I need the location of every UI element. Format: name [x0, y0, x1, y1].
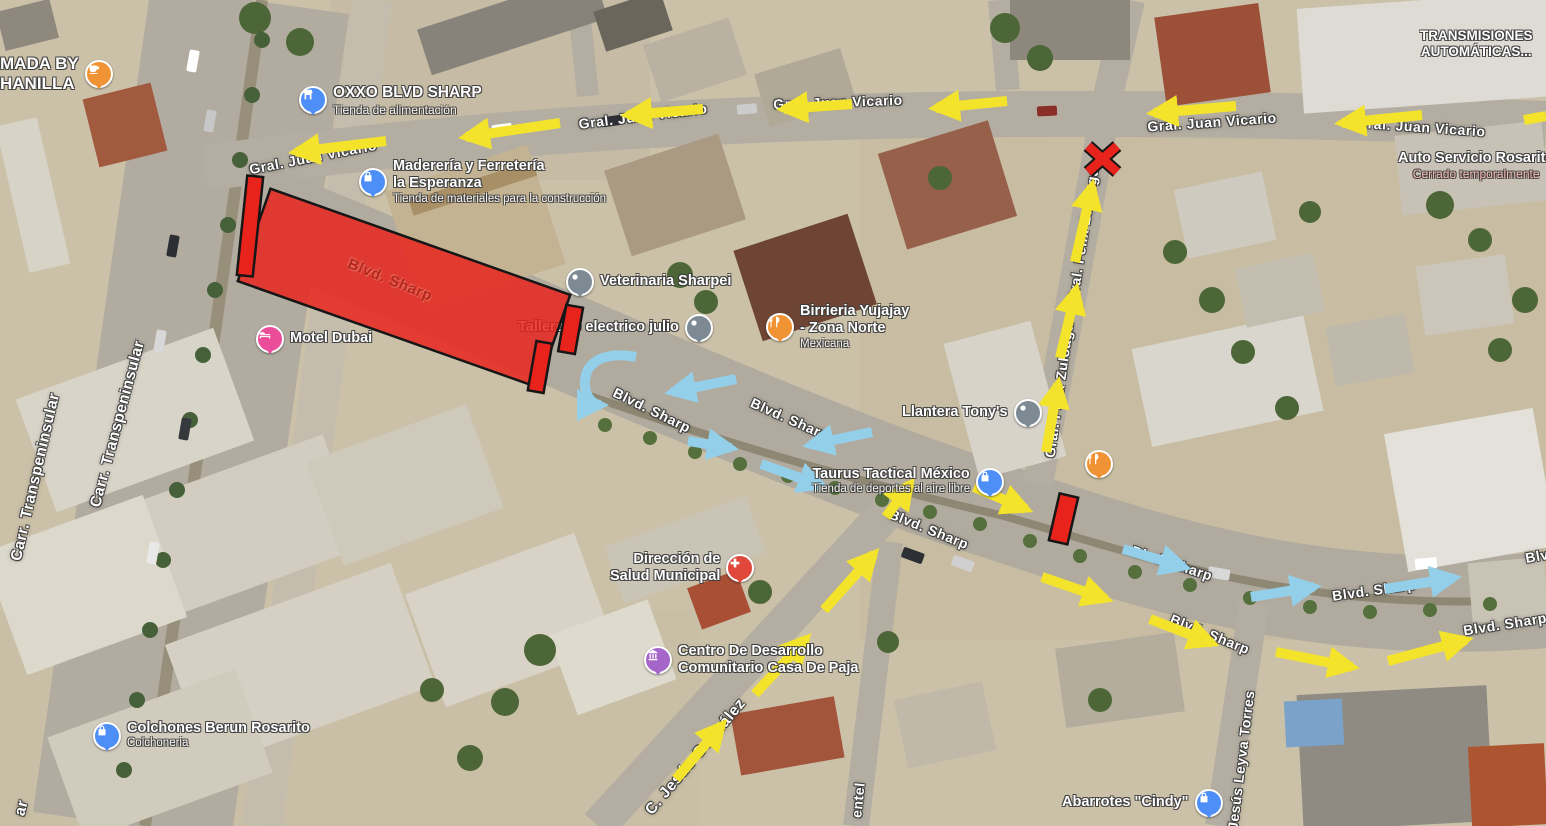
poi-name: Abarrotes "Cindy": [1062, 794, 1189, 811]
poi-subtitle: Tienda de deportes al aire libre: [812, 483, 970, 497]
poi-motel-dubai[interactable]: Motel Dubai: [256, 325, 372, 353]
poi-birrieria[interactable]: Birrieria Yujajay - Zona Norte Mexicana: [766, 303, 909, 352]
poi-transmisiones[interactable]: TRANSMISIONES AUTOMÁTICAS...: [1420, 28, 1533, 60]
poi-name: Llantera Tony's: [902, 404, 1008, 421]
poi-name: AUTOMÁTICAS...: [1420, 44, 1533, 60]
shopping-bag-icon: [1195, 789, 1223, 817]
poi-centro-desarrollo[interactable]: Centro De Desarrollo Comunitario Casa De…: [644, 643, 859, 678]
poi-taurus[interactable]: Taurus Tactical México Tienda de deporte…: [812, 466, 1004, 497]
shopping-bag-icon: [93, 722, 121, 750]
shopping-bag-icon: [359, 168, 387, 196]
poi-food-stand[interactable]: [1085, 450, 1113, 478]
civic-icon: [644, 646, 672, 674]
poi-veterinaria[interactable]: Veterinaria Sharpei: [566, 268, 731, 296]
poi-name: Motel Dubai: [290, 330, 372, 347]
bed-icon: [256, 325, 284, 353]
poi-name: Colchones Berun Rosarito: [127, 720, 310, 737]
poi-oxxo[interactable]: OXXO BLVD SHARP Tienda de alimentación: [299, 84, 482, 117]
poi-name: HANILLA: [0, 74, 79, 94]
dot-icon: [1014, 399, 1042, 427]
poi-chanilla[interactable]: MADA BY HANILLA: [0, 54, 113, 95]
shopping-bag-icon: [976, 468, 1004, 496]
poi-name: la Esperanza: [393, 175, 606, 192]
poi-status-closed: Cerrado temporalmente: [1398, 167, 1546, 181]
poi-name: TRANSMISIONES: [1420, 28, 1533, 44]
poi-name: Salud Municipal: [610, 568, 720, 585]
poi-labels: Blvd. Sharp MADA BY HANILLA OXXO BLVD SH…: [0, 0, 1546, 826]
poi-name: MADA BY: [0, 54, 79, 74]
poi-abarrotes-cindy[interactable]: Abarrotes "Cindy": [1062, 789, 1223, 817]
poi-name: Dirección de: [610, 551, 720, 568]
poi-salud-municipal[interactable]: Dirección de Salud Municipal: [610, 551, 754, 586]
poi-llantera[interactable]: Llantera Tony's: [902, 399, 1042, 427]
map-canvas[interactable]: Gral. Juan Vicario Gral. Juan Vicario Gr…: [0, 0, 1546, 826]
restaurant-icon: [766, 313, 794, 341]
poi-name: Birrieria Yujajay: [800, 303, 909, 320]
poi-name: - Zona Norte: [800, 320, 909, 337]
health-icon: [726, 554, 754, 582]
poi-madereria[interactable]: Maderería y Ferretería la Esperanza Tien…: [359, 158, 606, 207]
poi-name: Comunitario Casa De Paja: [678, 660, 859, 677]
poi-colchones[interactable]: Colchones Berun Rosarito Colchoneria: [93, 720, 310, 751]
store-icon: [299, 86, 327, 114]
poi-subtitle: Tienda de alimentación: [333, 103, 482, 117]
dot-icon: [566, 268, 594, 296]
poi-auto-servicio[interactable]: Auto Servicio Rosarito Cerrado temporalm…: [1398, 150, 1546, 182]
street-label-blvd-sharp-blocked: Blvd. Sharp: [345, 255, 435, 304]
poi-name: Auto Servicio Rosarito: [1398, 150, 1546, 167]
poi-name: Veterinaria Sharpei: [600, 273, 731, 290]
poi-name: Centro De Desarrollo: [678, 643, 859, 660]
restaurant-icon: [1085, 450, 1113, 478]
poi-subtitle: Tienda de materiales para la construcció…: [393, 193, 606, 207]
poi-name: Maderería y Ferretería: [393, 158, 606, 175]
poi-name: Taurus Tactical México: [812, 466, 970, 483]
poi-subtitle: Mexicana: [800, 338, 909, 352]
poi-subtitle: Colchoneria: [127, 737, 310, 751]
cafe-icon: [85, 60, 113, 88]
poi-name: OXXO BLVD SHARP: [333, 84, 482, 103]
